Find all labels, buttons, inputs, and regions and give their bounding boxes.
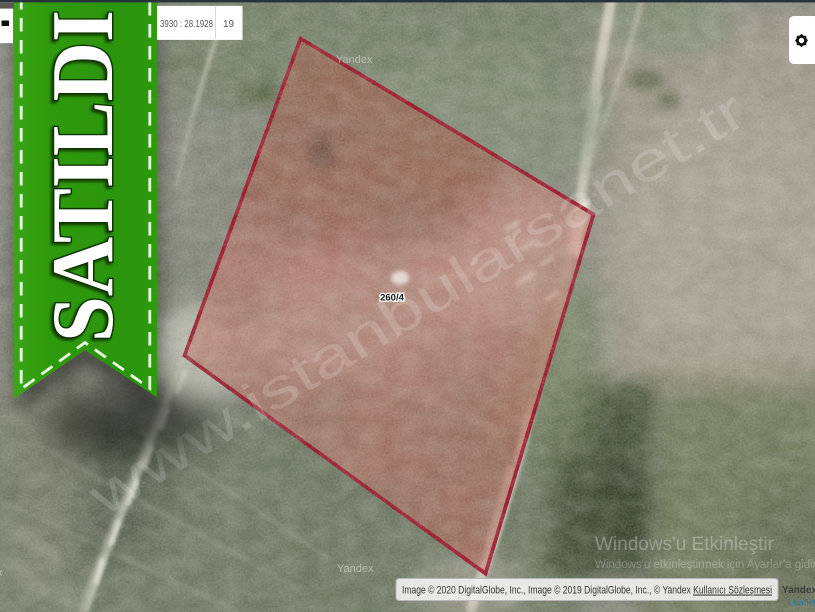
svg-text:SATILDI: SATILDI	[35, 10, 132, 342]
svg-text:Leaflet: Leaflet	[788, 598, 815, 609]
svg-text:3930 : 28.1928: 3930 : 28.1928	[160, 19, 213, 30]
svg-text:Windows'u Etkinleştir: Windows'u Etkinleştir	[595, 534, 775, 555]
svg-text:Image © 2020 DigitalGlobe, Inc: Image © 2020 DigitalGlobe, Inc., Image ©…	[402, 585, 772, 597]
svg-text:Yandex: Yandex	[337, 563, 374, 575]
svg-text:Windows'u etkinleştirmek için: Windows'u etkinleştirmek için Ayarlar'a …	[595, 559, 815, 571]
svg-text:Yandex: Yandex	[782, 585, 815, 596]
svg-text:19: 19	[223, 19, 235, 30]
svg-text:Yandex: Yandex	[336, 54, 373, 66]
